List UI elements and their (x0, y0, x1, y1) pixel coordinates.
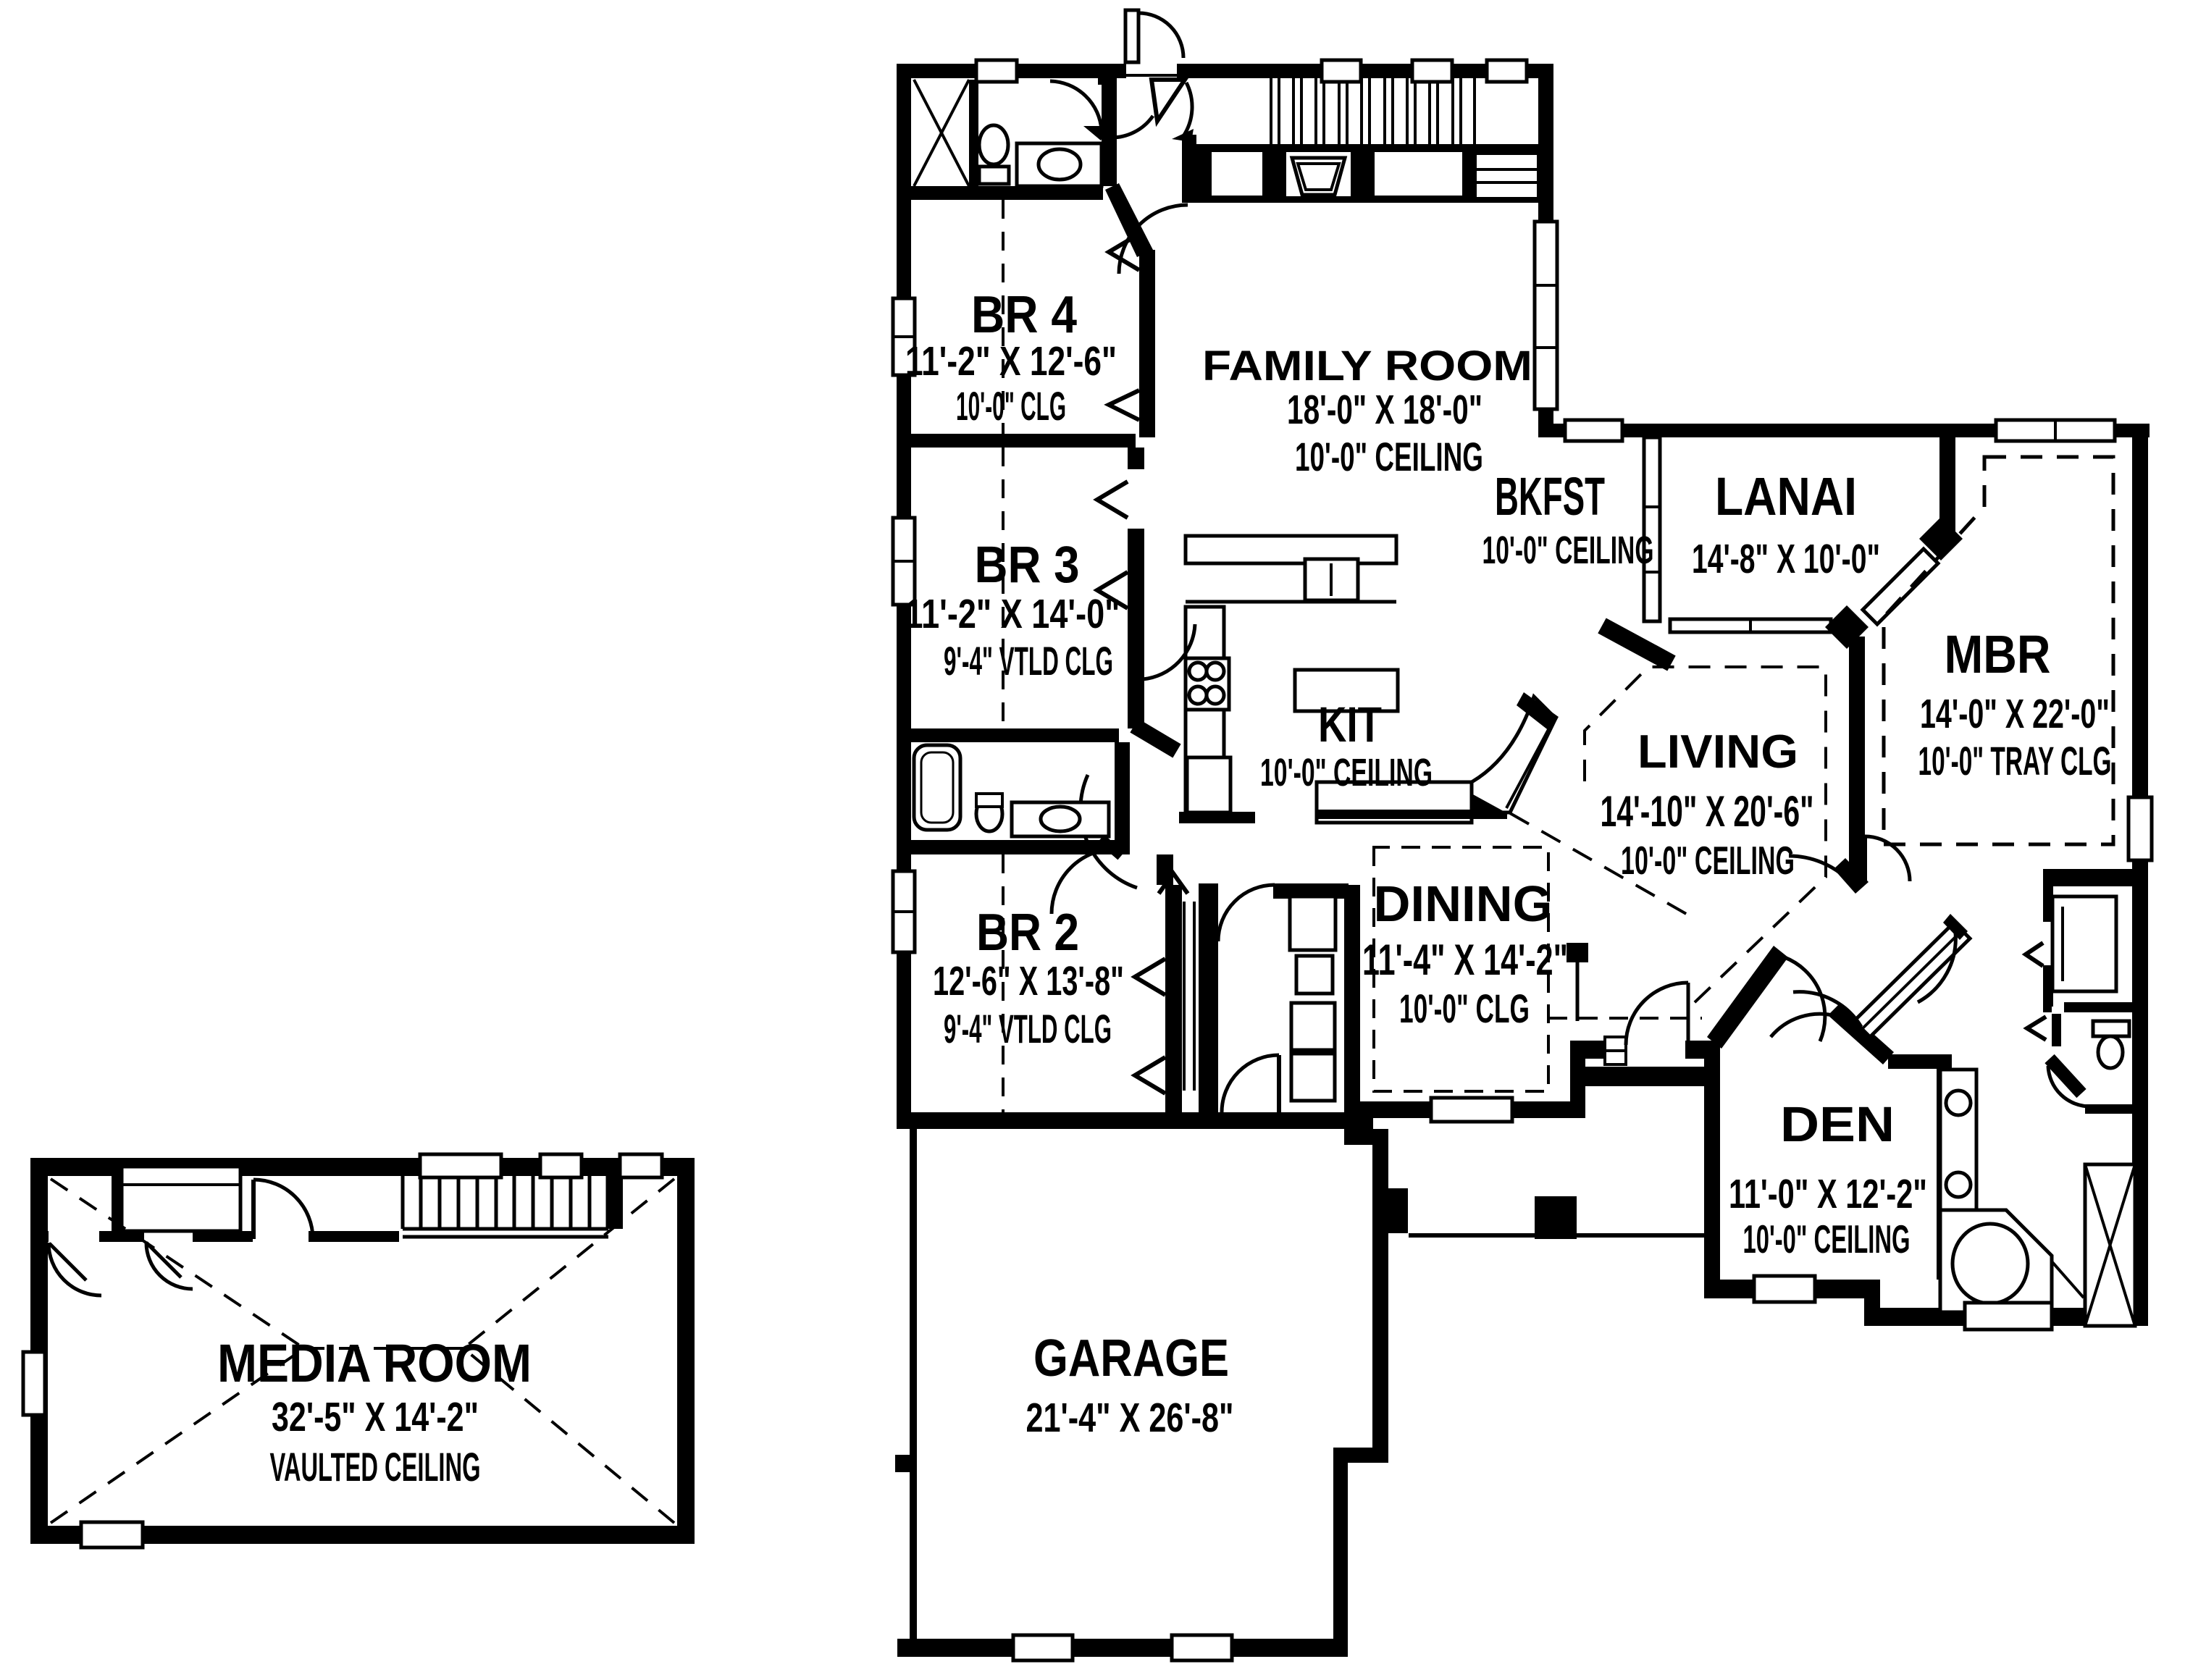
svg-text:18'-0" X 18'-0": 18'-0" X 18'-0" (1287, 387, 1482, 433)
svg-text:MEDIA ROOM: MEDIA ROOM (217, 1333, 532, 1393)
svg-text:14'-10" X 20'-6": 14'-10" X 20'-6" (1601, 787, 1814, 836)
svg-text:LIVING: LIVING (1637, 725, 1798, 778)
svg-text:9'-4" VTLD CLG: 9'-4" VTLD CLG (944, 1006, 1112, 1051)
svg-text:LANAI: LANAI (1715, 466, 1857, 526)
svg-text:11'-4" X 14'-2": 11'-4" X 14'-2" (1362, 936, 1568, 984)
svg-text:12'-6" X 13'-8": 12'-6" X 13'-8" (933, 958, 1124, 1004)
svg-text:11'-0" X 12'-2": 11'-0" X 12'-2" (1729, 1171, 1927, 1217)
svg-text:21'-4" X 26'-8": 21'-4" X 26'-8" (1026, 1395, 1234, 1441)
svg-text:DINING: DINING (1374, 875, 1553, 932)
svg-text:11'-2" X 12'-6": 11'-2" X 12'-6" (905, 338, 1117, 385)
svg-text:MBR: MBR (1945, 624, 2051, 684)
svg-text:14'-8" X 10'-0": 14'-8" X 10'-0" (1692, 536, 1880, 582)
svg-text:BKFST: BKFST (1495, 466, 1605, 526)
svg-text:10'-0" CEILING: 10'-0" CEILING (1295, 434, 1483, 479)
svg-text:10'-0" CEILING: 10'-0" CEILING (1260, 751, 1433, 794)
svg-text:10'-0" CEILING: 10'-0" CEILING (1482, 529, 1654, 572)
svg-text:32'-5" X 14'-2": 32'-5" X 14'-2" (272, 1394, 479, 1440)
svg-text:KIT: KIT (1318, 697, 1382, 752)
svg-text:VAULTED CEILING: VAULTED CEILING (270, 1444, 481, 1490)
svg-text:11'-2" X 14'-0": 11'-2" X 14'-0" (905, 591, 1120, 637)
svg-text:10'-0" CEILING: 10'-0" CEILING (1621, 838, 1795, 883)
svg-text:10'-0" CLG: 10'-0" CLG (956, 383, 1066, 429)
svg-text:10'-0" CEILING: 10'-0" CEILING (1743, 1217, 1911, 1261)
svg-text:GARAGE: GARAGE (1033, 1330, 1229, 1387)
svg-text:10'-0" CLG: 10'-0" CLG (1399, 986, 1530, 1031)
svg-text:14'-0" X 22'-0": 14'-0" X 22'-0" (1920, 691, 2110, 737)
svg-text:BR 3: BR 3 (975, 537, 1080, 594)
svg-text:10'-0" TRAY CLG: 10'-0" TRAY CLG (1918, 738, 2112, 784)
svg-text:9'-4" VTLD CLG: 9'-4" VTLD CLG (944, 638, 1113, 684)
svg-text:FAMILY ROOM: FAMILY ROOM (1202, 343, 1532, 390)
svg-text:DEN: DEN (1780, 1096, 1895, 1152)
svg-text:BR 2: BR 2 (976, 904, 1079, 962)
svg-text:BR 4: BR 4 (971, 286, 1077, 344)
